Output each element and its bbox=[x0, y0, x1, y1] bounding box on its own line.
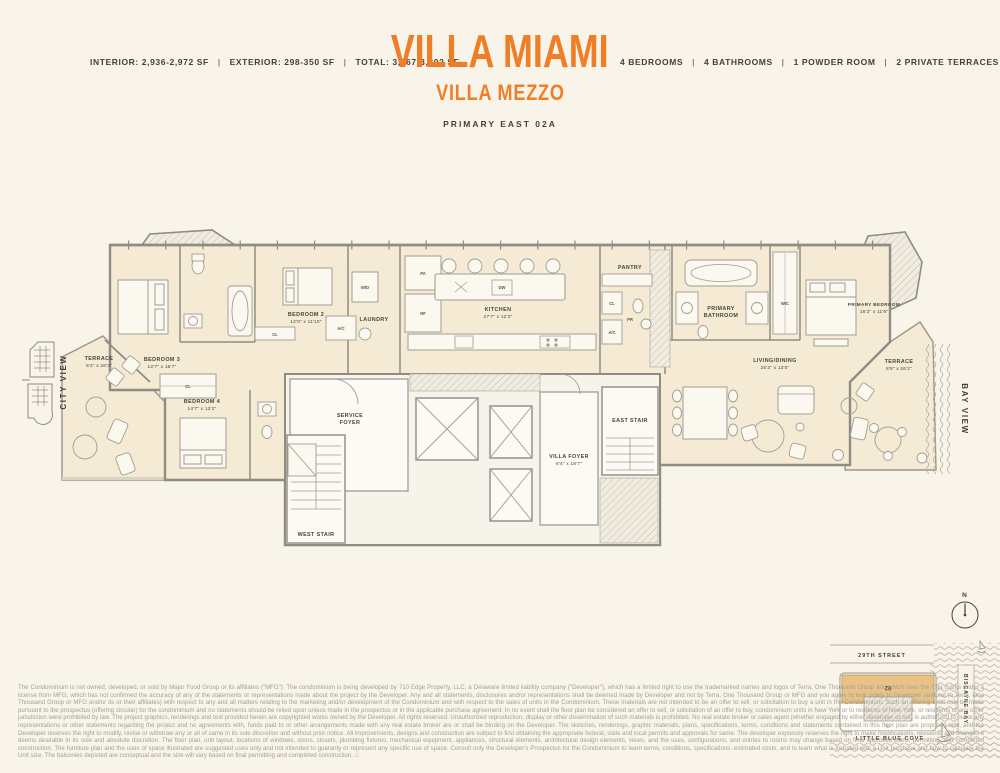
floor-plan-drawing: SERVICE FOYER WEST STAIR bbox=[0, 222, 1000, 567]
bedrooms-spec: 4 BEDROOMS bbox=[620, 57, 683, 67]
west-terrace-label: TERRACE bbox=[85, 356, 114, 362]
primary-bedroom-label: PRIMARY BEDROOM bbox=[848, 302, 900, 307]
svg-text:A/C: A/C bbox=[337, 326, 344, 331]
pantry-shelf-icon bbox=[602, 274, 652, 286]
primary-bathroom-label: PRIMARY bbox=[707, 306, 734, 312]
bed-icon bbox=[283, 268, 332, 305]
svg-text:PA: PA bbox=[420, 271, 426, 276]
svg-text:DW: DW bbox=[499, 285, 506, 290]
bedroom3-label: BEDROOM 3 bbox=[144, 357, 180, 363]
svg-text:A/C: A/C bbox=[608, 330, 615, 335]
villa-foyer-label: VILLA FOYER bbox=[549, 454, 589, 460]
bed-icon bbox=[118, 280, 168, 334]
svg-text:27'7" x 12'2": 27'7" x 12'2" bbox=[484, 314, 513, 320]
svg-text:16'2" x 11'6": 16'2" x 11'6" bbox=[860, 309, 889, 315]
title-block: VILLA MIAMI VILLA MEZZO PRIMARY EAST 02A bbox=[0, 28, 1000, 129]
svg-text:FOYER: FOYER bbox=[340, 420, 361, 426]
legal-disclaimer: The Condominium is not owned, developed,… bbox=[18, 684, 984, 760]
powder-room-label: PR bbox=[627, 317, 633, 322]
kitchen-counter-icon bbox=[408, 334, 596, 350]
svg-text:8'8" x 26'2": 8'8" x 26'2" bbox=[886, 366, 912, 372]
compass-icon: N bbox=[952, 592, 978, 628]
pantry-label: PANTRY bbox=[618, 265, 642, 271]
svg-text:W/D: W/D bbox=[361, 285, 369, 290]
svg-text:8'4" x 18'7": 8'4" x 18'7" bbox=[556, 461, 582, 467]
wic-label: WIC bbox=[781, 301, 789, 306]
city-skyline-icon bbox=[22, 342, 54, 424]
bed-icon bbox=[180, 418, 226, 468]
floor-plan: SERVICE FOYER WEST STAIR bbox=[0, 222, 1000, 567]
svg-text:CL: CL bbox=[609, 301, 615, 306]
svg-text:12'7" x 16'7": 12'7" x 16'7" bbox=[148, 364, 177, 370]
bathrooms-spec: 4 BATHROOMS bbox=[704, 57, 773, 67]
closet-icon: CL bbox=[160, 374, 216, 398]
shaft-hatch bbox=[650, 250, 670, 367]
room-count-specs: 4 BEDROOMS|4 BATHROOMS|1 POWDER ROOM|2 P… bbox=[620, 57, 999, 67]
svg-text:BATHROOM: BATHROOM bbox=[704, 313, 739, 319]
east-stair: EAST STAIR bbox=[602, 387, 658, 475]
plan-name: PRIMARY EAST 02A bbox=[0, 119, 1000, 129]
service-foyer-label: SERVICE bbox=[337, 413, 363, 419]
east-stair-label: EAST STAIR bbox=[612, 418, 648, 424]
powder-room-spec: 1 POWDER ROOM bbox=[794, 57, 876, 67]
bedroom2-label: BEDROOM 2 bbox=[288, 312, 324, 318]
terraces-spec: 2 PRIVATE TERRACES bbox=[896, 57, 999, 67]
sofa-icon bbox=[778, 386, 814, 414]
east-terrace-label: TERRACE bbox=[885, 359, 914, 365]
svg-text:12'0" x 11'10": 12'0" x 11'10" bbox=[290, 319, 322, 325]
building-core: SERVICE FOYER WEST STAIR bbox=[285, 374, 660, 545]
street-label: 29TH STREET bbox=[858, 653, 906, 659]
bay-waves-icon bbox=[922, 344, 952, 474]
page-subtitle: VILLA MEZZO bbox=[436, 82, 565, 104]
svg-text:CL: CL bbox=[185, 384, 191, 389]
svg-text:8'4" x 26'2": 8'4" x 26'2" bbox=[86, 363, 112, 369]
equal-housing-icon: ⌂ bbox=[355, 752, 359, 759]
laundry-sink-icon bbox=[359, 328, 371, 340]
compass-n-label: N bbox=[962, 592, 968, 599]
walk-in-closet: WIC bbox=[773, 252, 797, 334]
living-dining-label: LIVING/DINING bbox=[753, 358, 797, 364]
disclaimer-text: The Condominium is not owned, developed,… bbox=[18, 684, 984, 759]
bay-view-label: BAY VIEW bbox=[960, 383, 969, 434]
kitchen-label: KITCHEN bbox=[485, 307, 512, 313]
city-view-label: CITY VIEW bbox=[59, 354, 68, 409]
bathtub-icon bbox=[685, 260, 757, 286]
laundry-label: LAUNDRY bbox=[360, 317, 389, 323]
svg-text:CL: CL bbox=[272, 332, 278, 337]
svg-text:RF: RF bbox=[420, 311, 426, 316]
svg-text:14'7" x 13'2": 14'7" x 13'2" bbox=[188, 406, 217, 412]
floorplan-sheet: INTERIOR: 2,936-2,972 SF|EXTERIOR: 298-3… bbox=[0, 0, 1000, 773]
page-title: VILLA MIAMI bbox=[391, 28, 609, 74]
svg-text:25'2" x 13'5": 25'2" x 13'5" bbox=[761, 365, 790, 371]
street-band: 29TH STREET bbox=[830, 645, 934, 663]
west-stair-label: WEST STAIR bbox=[298, 532, 335, 538]
bedroom4-label: BEDROOM 4 bbox=[184, 399, 220, 405]
